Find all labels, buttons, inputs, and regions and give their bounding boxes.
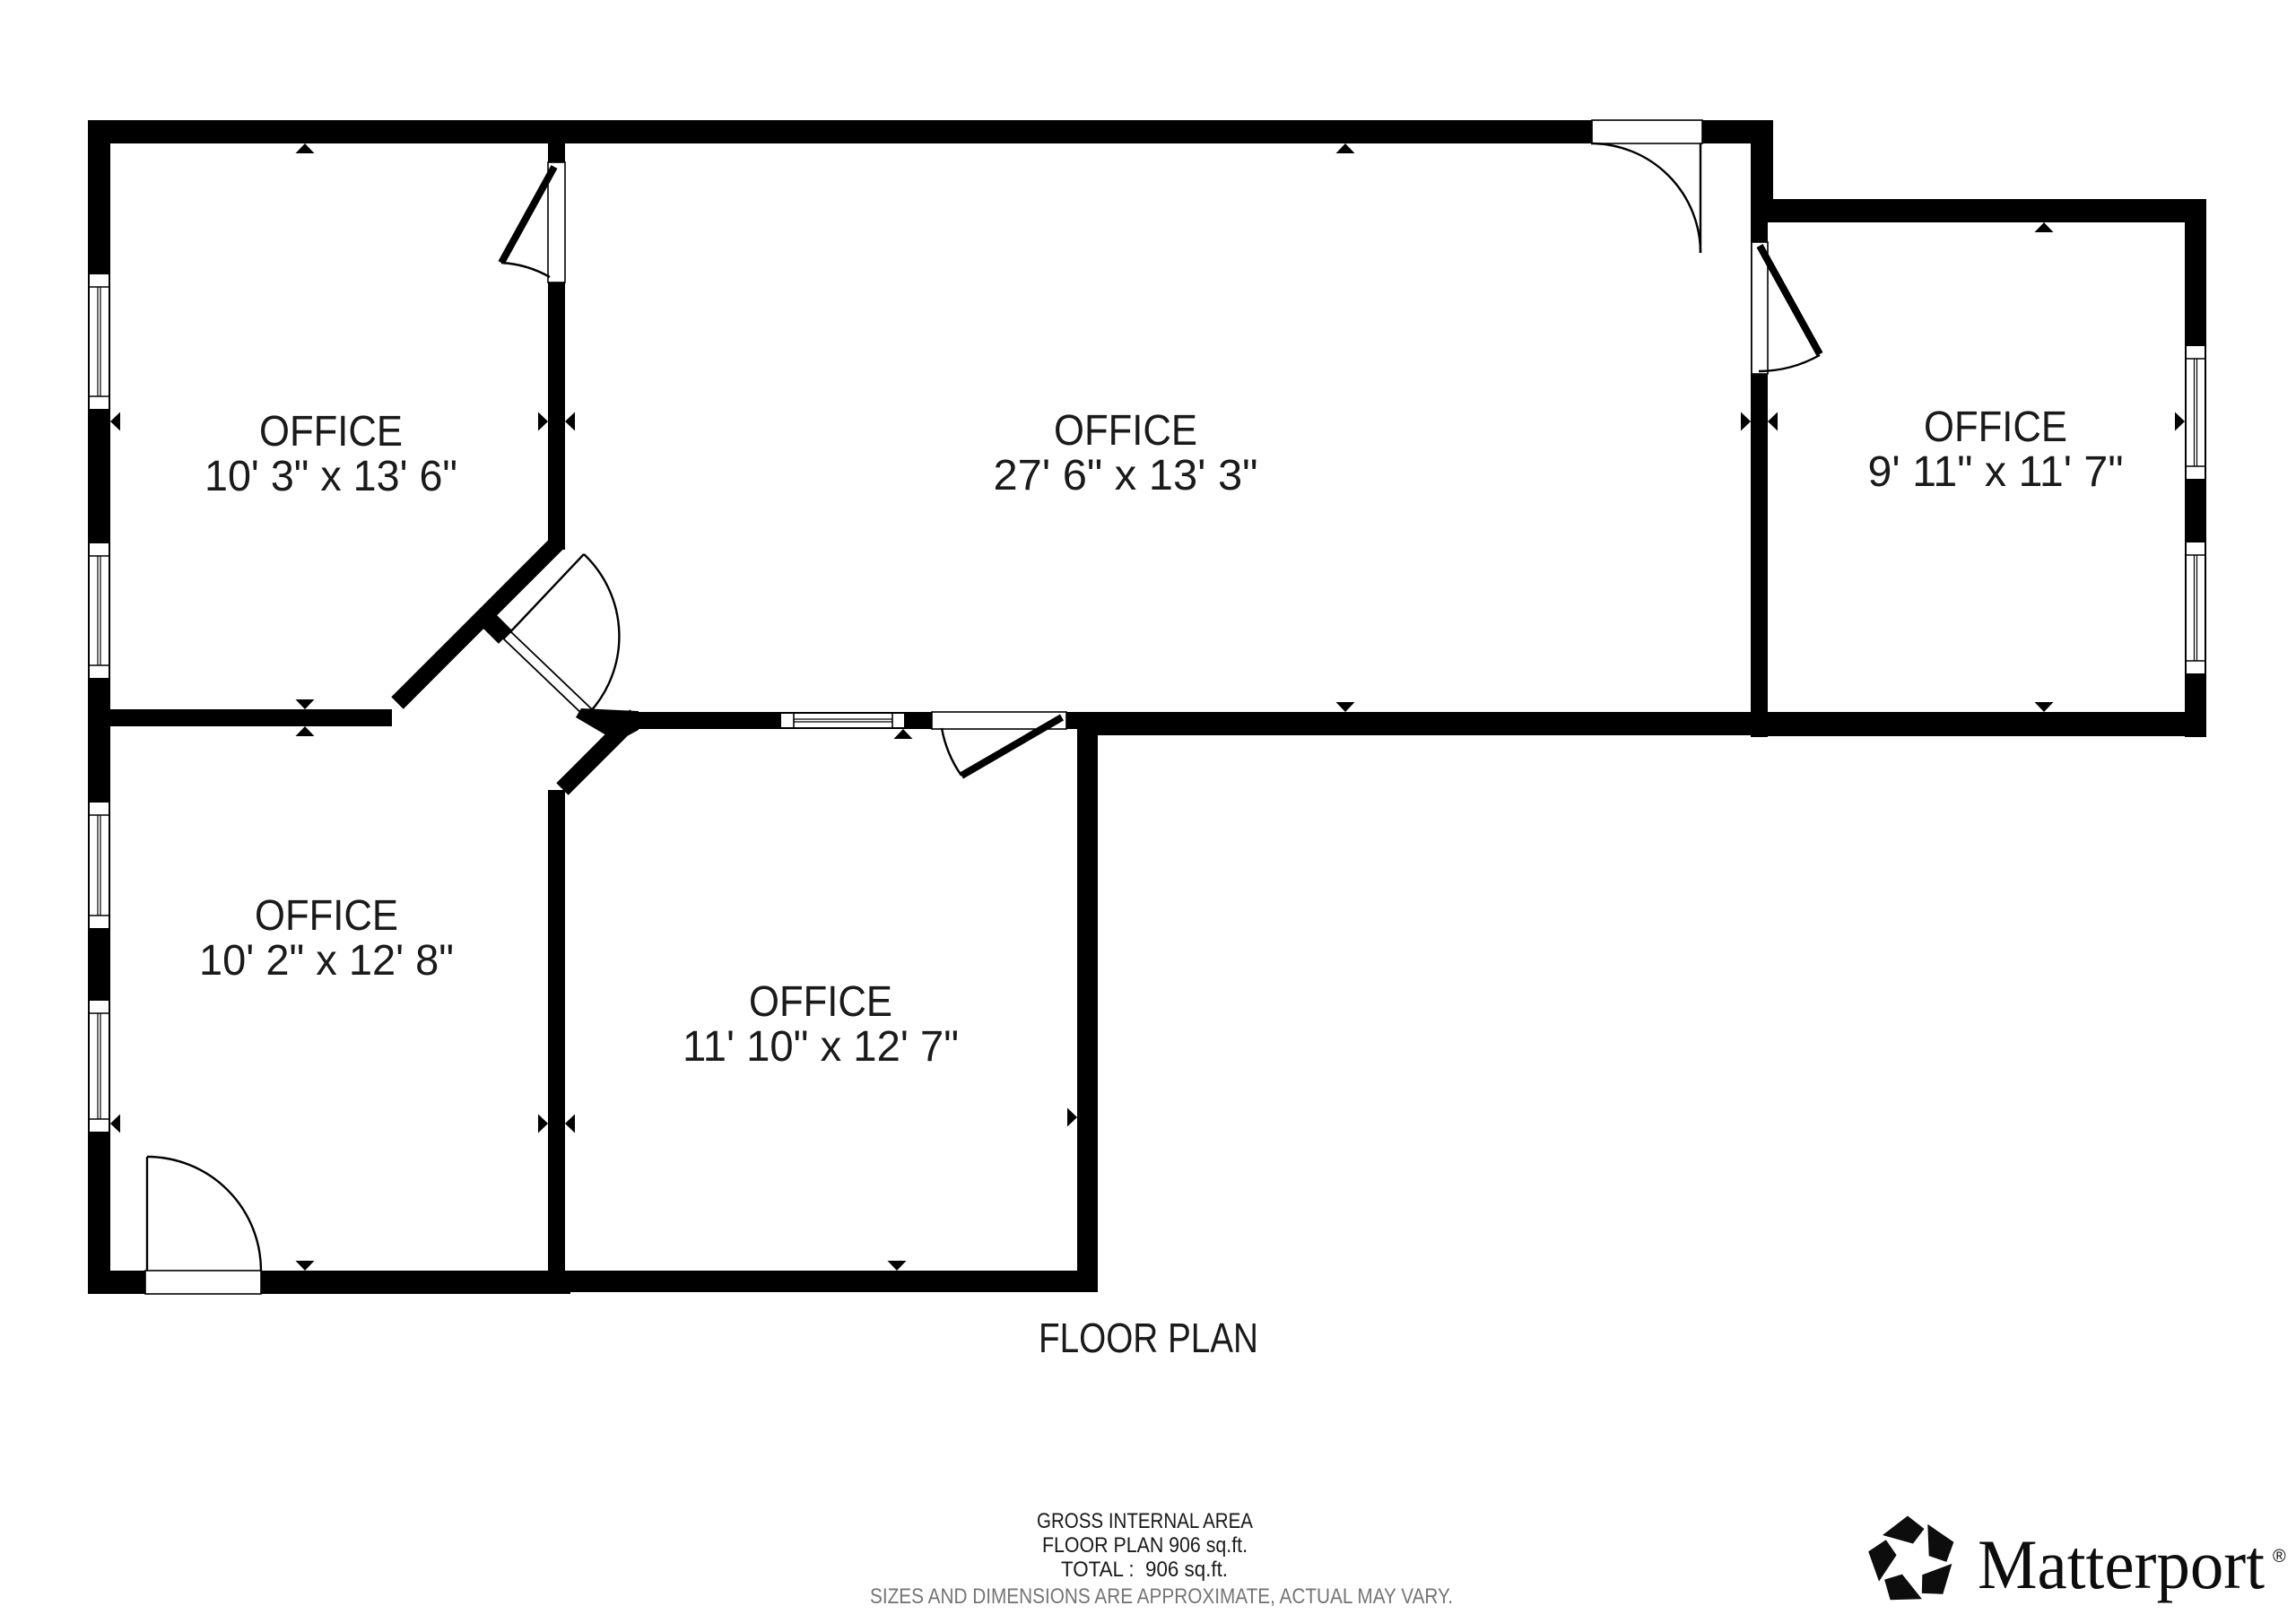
svg-text:OFFICE: OFFICE [255, 892, 398, 940]
svg-text:9' 11" x 11' 7": 9' 11" x 11' 7" [1868, 448, 2124, 496]
svg-text:OFFICE: OFFICE [259, 408, 403, 456]
svg-text:27' 6" x 13' 3": 27' 6" x 13' 3" [994, 452, 1258, 499]
svg-text:OFFICE: OFFICE [1054, 407, 1197, 455]
svg-text:TOTAL : 906 sq.ft.: TOTAL : 906 sq.ft. [1061, 1558, 1228, 1582]
svg-text:OFFICE: OFFICE [1924, 404, 2067, 451]
svg-text:10' 2" x 12' 8": 10' 2" x 12' 8" [199, 937, 454, 985]
svg-text:FLOOR PLAN 906 sq.ft.: FLOOR PLAN 906 sq.ft. [1042, 1533, 1248, 1558]
svg-text:GROSS INTERNAL AREA: GROSS INTERNAL AREA [1037, 1509, 1253, 1533]
svg-text:®: ® [2273, 1547, 2286, 1567]
svg-text:11' 10" x 12' 7": 11' 10" x 12' 7" [683, 1023, 959, 1071]
svg-text:10' 3" x 13' 6": 10' 3" x 13' 6" [204, 453, 457, 500]
svg-text:SIZES AND DIMENSIONS ARE APPRO: SIZES AND DIMENSIONS ARE APPROXIMATE, AC… [870, 1584, 1453, 1609]
svg-text:FLOOR PLAN: FLOOR PLAN [1039, 1315, 1258, 1361]
svg-text:OFFICE: OFFICE [749, 978, 892, 1026]
svg-text:Matterport: Matterport [1978, 1525, 2265, 1603]
